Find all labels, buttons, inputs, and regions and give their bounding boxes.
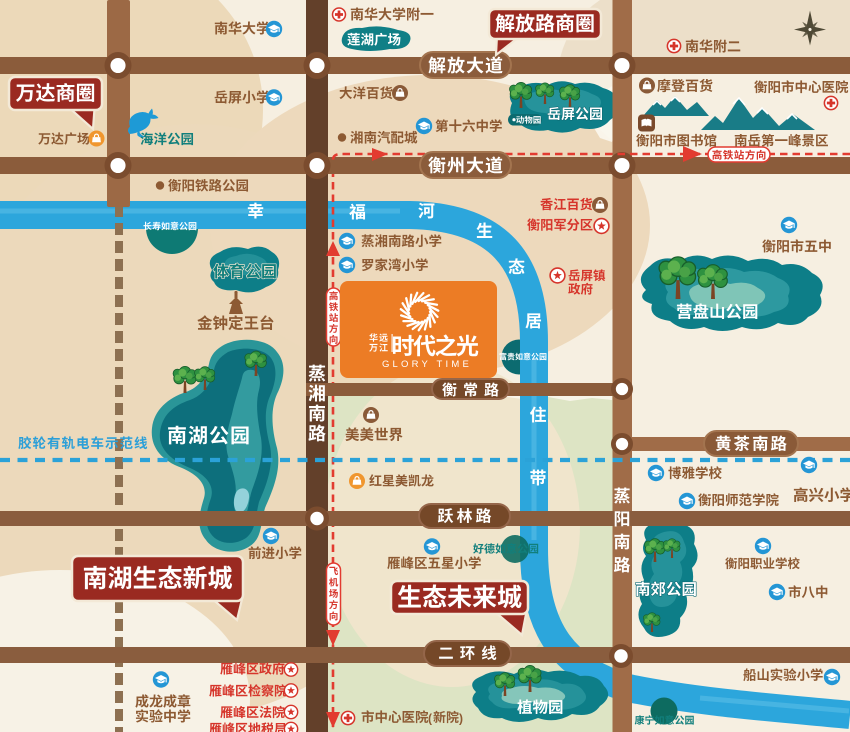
svg-text:): ) [459, 712, 463, 726]
svg-text:(: ( [428, 712, 432, 726]
svg-text:GLORY TIME: GLORY TIME [382, 359, 472, 370]
